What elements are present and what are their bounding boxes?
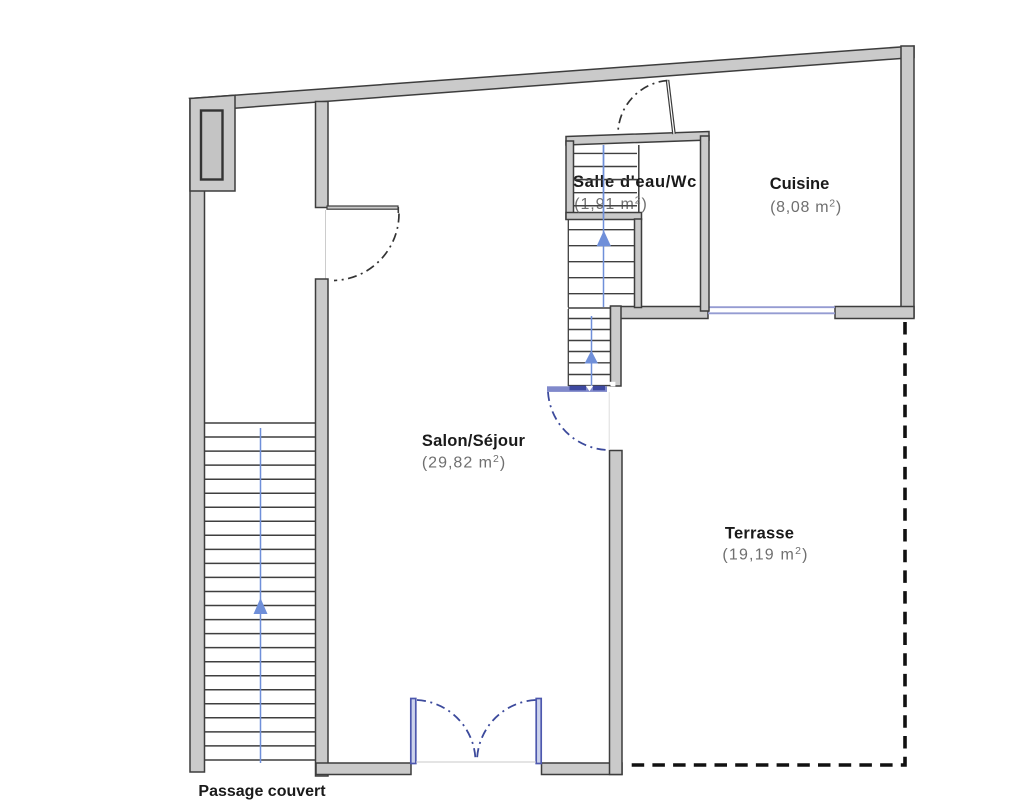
svg-text:(19,19 m2): (19,19 m2): [722, 545, 808, 564]
svg-text:Terrasse: Terrasse: [725, 525, 794, 543]
svg-text:Cuisine: Cuisine: [770, 175, 830, 193]
svg-text:(8,08 m2): (8,08 m2): [770, 198, 842, 217]
svg-text:(1,91 m2): (1,91 m2): [574, 195, 648, 214]
svg-text:Passage couvert: Passage couvert: [198, 783, 326, 800]
svg-text:Salle d'eau/Wc: Salle d'eau/Wc: [573, 173, 697, 191]
svg-text:(29,82 m2): (29,82 m2): [422, 453, 506, 472]
svg-text:Salon/Séjour: Salon/Séjour: [422, 432, 526, 450]
